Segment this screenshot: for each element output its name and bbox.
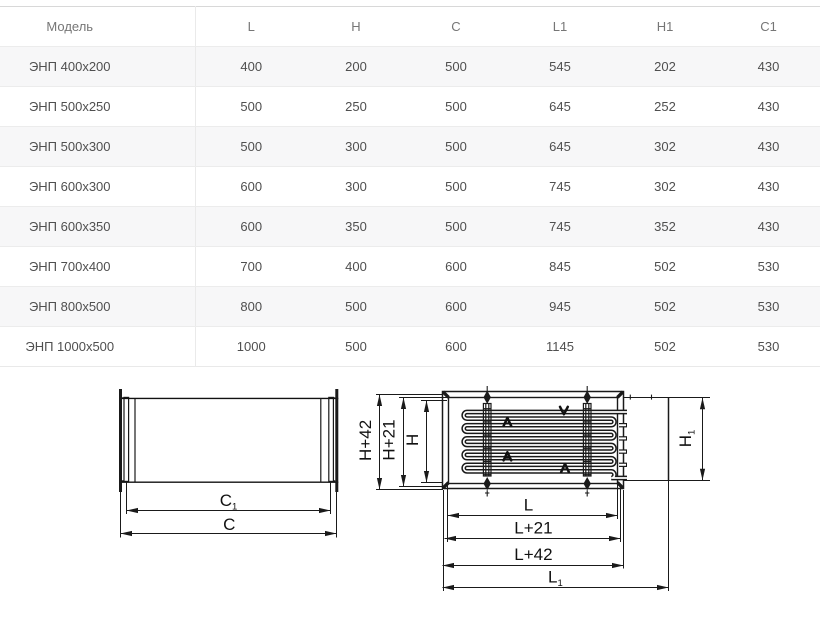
svg-text:H: H <box>403 434 422 446</box>
svg-text:H+42: H+42 <box>356 420 375 461</box>
svg-text:C1: C1 <box>220 491 238 513</box>
svg-text:H+21: H+21 <box>380 419 399 460</box>
svg-text:L+21: L+21 <box>514 519 552 538</box>
svg-text:L1: L1 <box>548 568 563 590</box>
svg-text:L: L <box>524 496 533 515</box>
svg-text:L+42: L+42 <box>514 545 552 564</box>
svg-text:H1: H1 <box>676 430 698 448</box>
svg-text:C: C <box>223 515 235 534</box>
